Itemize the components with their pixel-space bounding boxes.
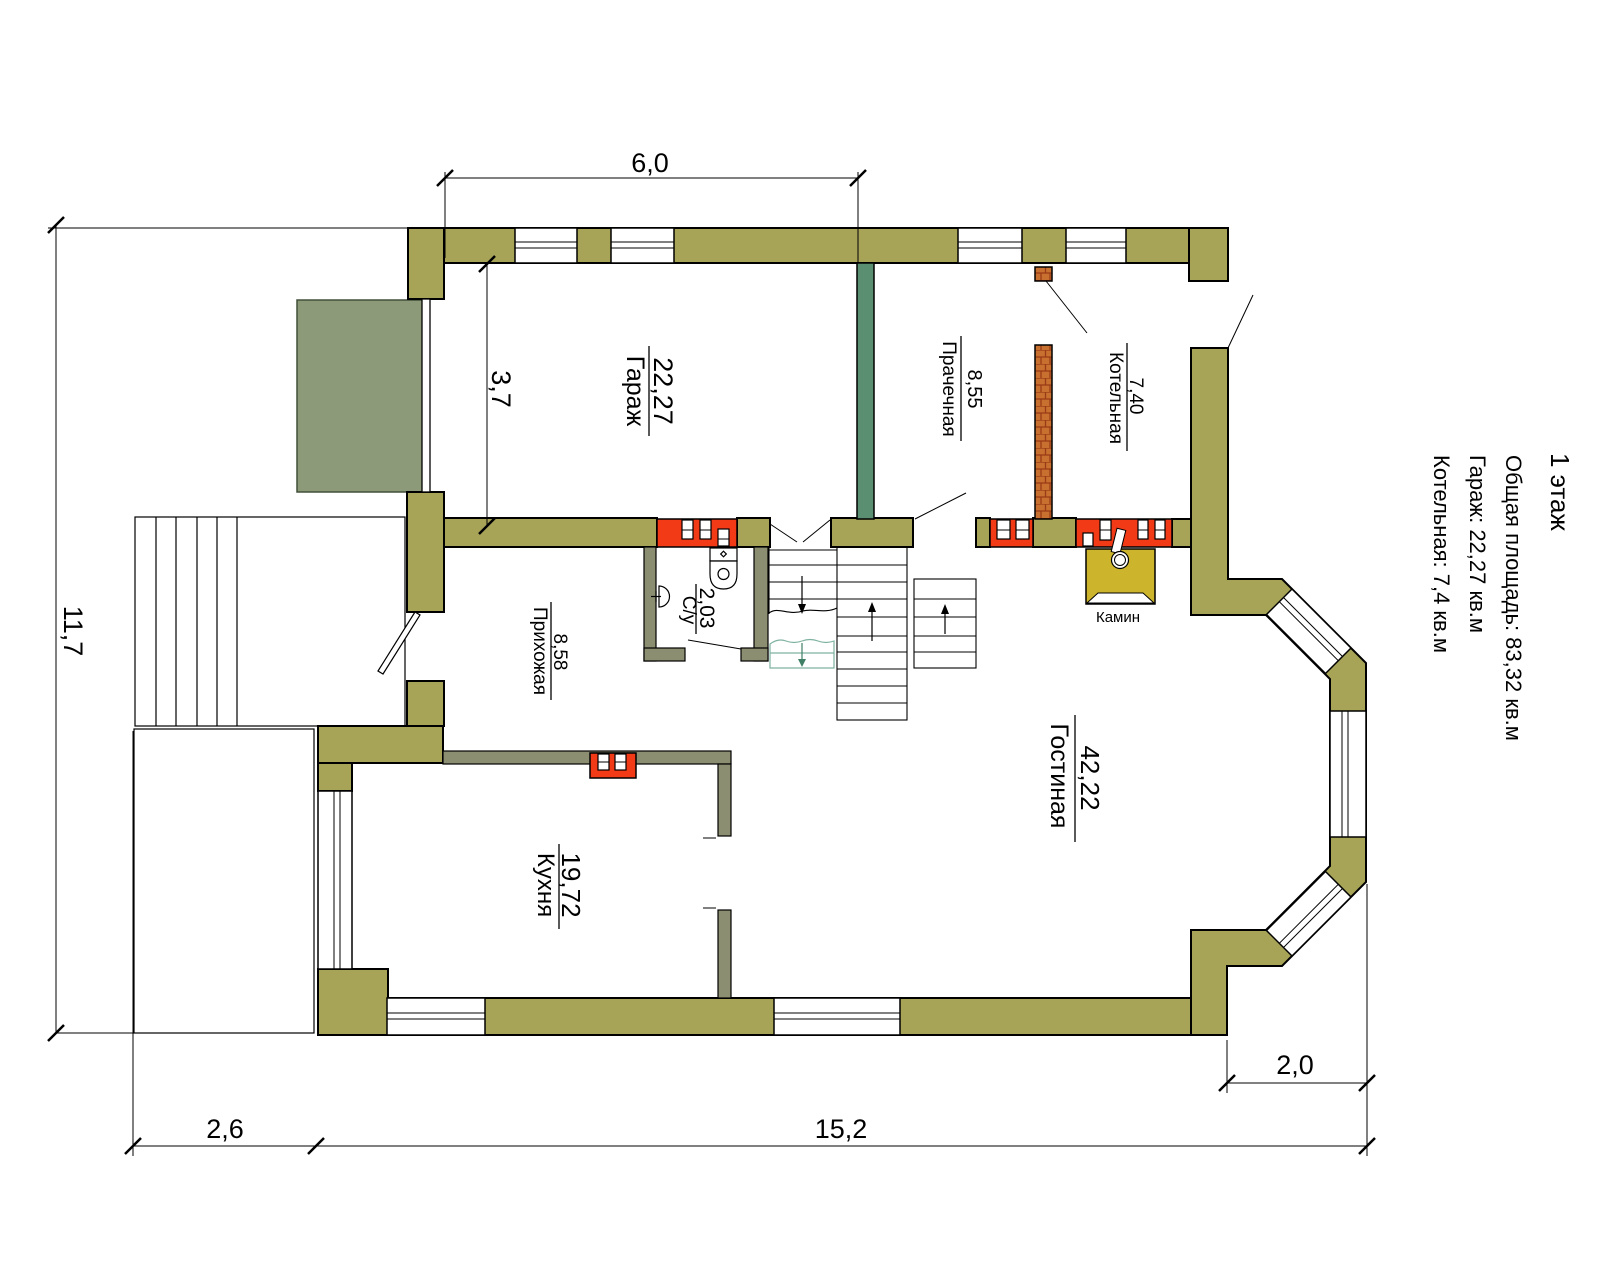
svg-text:С/у: С/у — [678, 596, 699, 625]
svg-text:2,6: 2,6 — [206, 1114, 244, 1144]
svg-text:Кухня: Кухня — [532, 853, 559, 917]
svg-text:3,7: 3,7 — [486, 370, 516, 408]
svg-text:2,0: 2,0 — [1276, 1050, 1314, 1080]
svg-text:8,58: 8,58 — [549, 634, 570, 671]
svg-text:Общая площадь: 83,32 кв.м: Общая площадь: 83,32 кв.м — [1501, 455, 1526, 741]
svg-text:8,55: 8,55 — [963, 370, 985, 409]
svg-text:1 этаж: 1 этаж — [1545, 453, 1575, 531]
svg-text:Камин: Камин — [1096, 609, 1140, 626]
svg-text:Гостиная: Гостиная — [1045, 724, 1073, 829]
svg-text:Котельная: Котельная — [1105, 352, 1126, 444]
svg-text:Гараж: Гараж — [621, 356, 649, 427]
svg-text:11,7: 11,7 — [58, 606, 88, 657]
svg-text:Гараж: 22,27 кв.м: Гараж: 22,27 кв.м — [1465, 455, 1490, 633]
svg-text:Прихожая: Прихожая — [529, 607, 550, 695]
svg-text:7,40: 7,40 — [1125, 378, 1146, 415]
svg-text:Прачечная: Прачечная — [938, 341, 959, 436]
svg-text:6,0: 6,0 — [631, 148, 669, 178]
svg-text:42,22: 42,22 — [1075, 745, 1105, 810]
svg-text:15,2: 15,2 — [815, 1114, 868, 1144]
svg-text:19,72: 19,72 — [556, 852, 586, 917]
svg-text:22,27: 22,27 — [648, 357, 678, 425]
svg-text:Котельная: 7,4 кв.м: Котельная: 7,4 кв.м — [1429, 455, 1454, 653]
